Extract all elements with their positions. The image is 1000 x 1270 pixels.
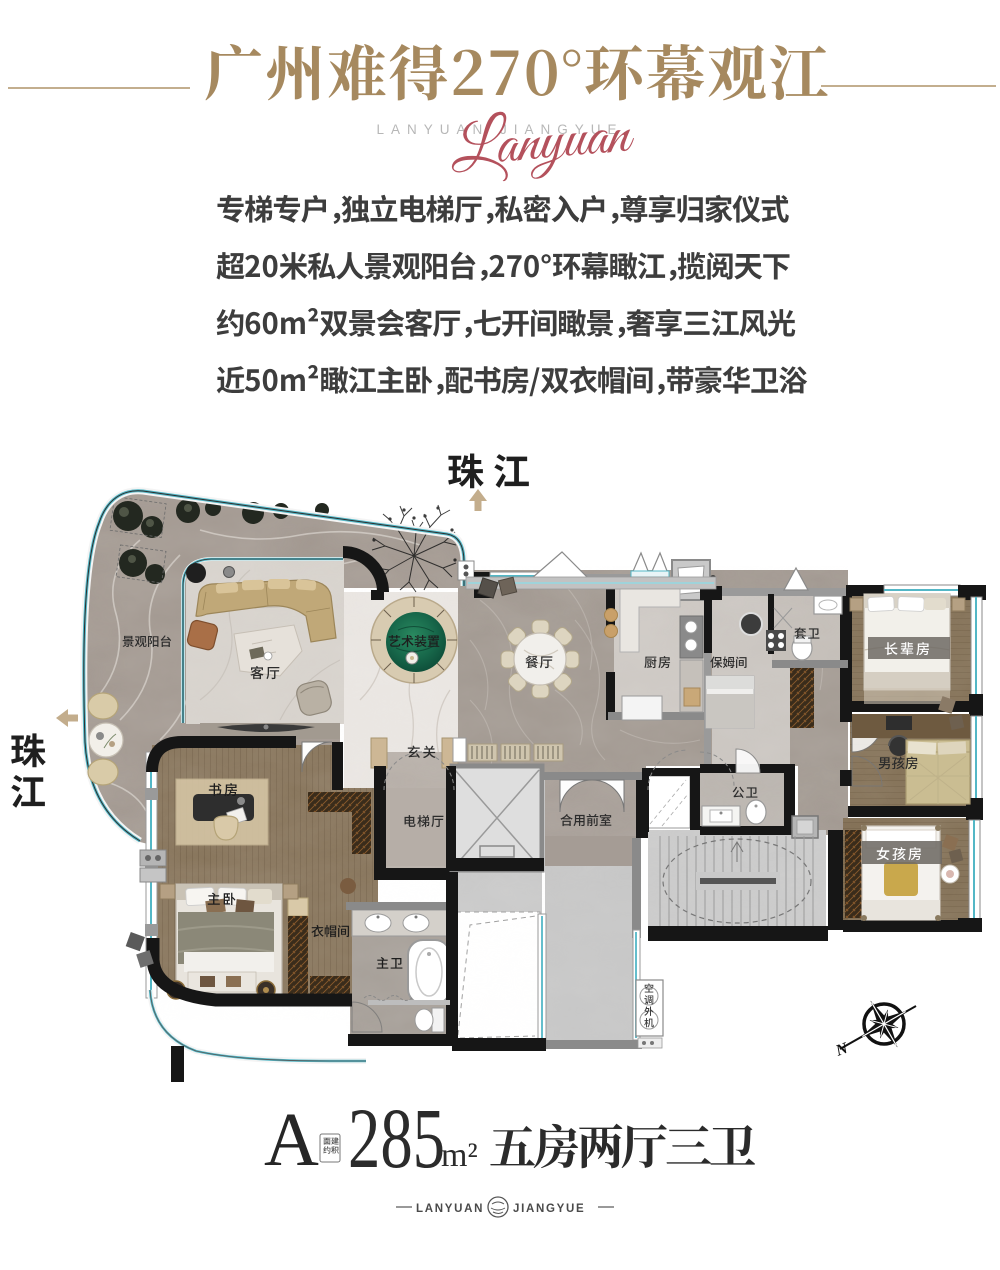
svg-text:m²: m²: [441, 1137, 478, 1174]
svg-text:285: 285: [348, 1090, 445, 1186]
svg-text:LANYUAN JIANGYUE: LANYUAN JIANGYUE: [376, 122, 623, 137]
svg-text:N: N: [833, 1039, 852, 1060]
svg-text:JIANGYUE: JIANGYUE: [513, 1203, 585, 1215]
svg-text:LANYUAN: LANYUAN: [416, 1203, 484, 1215]
svg-text:A: A: [264, 1098, 319, 1182]
